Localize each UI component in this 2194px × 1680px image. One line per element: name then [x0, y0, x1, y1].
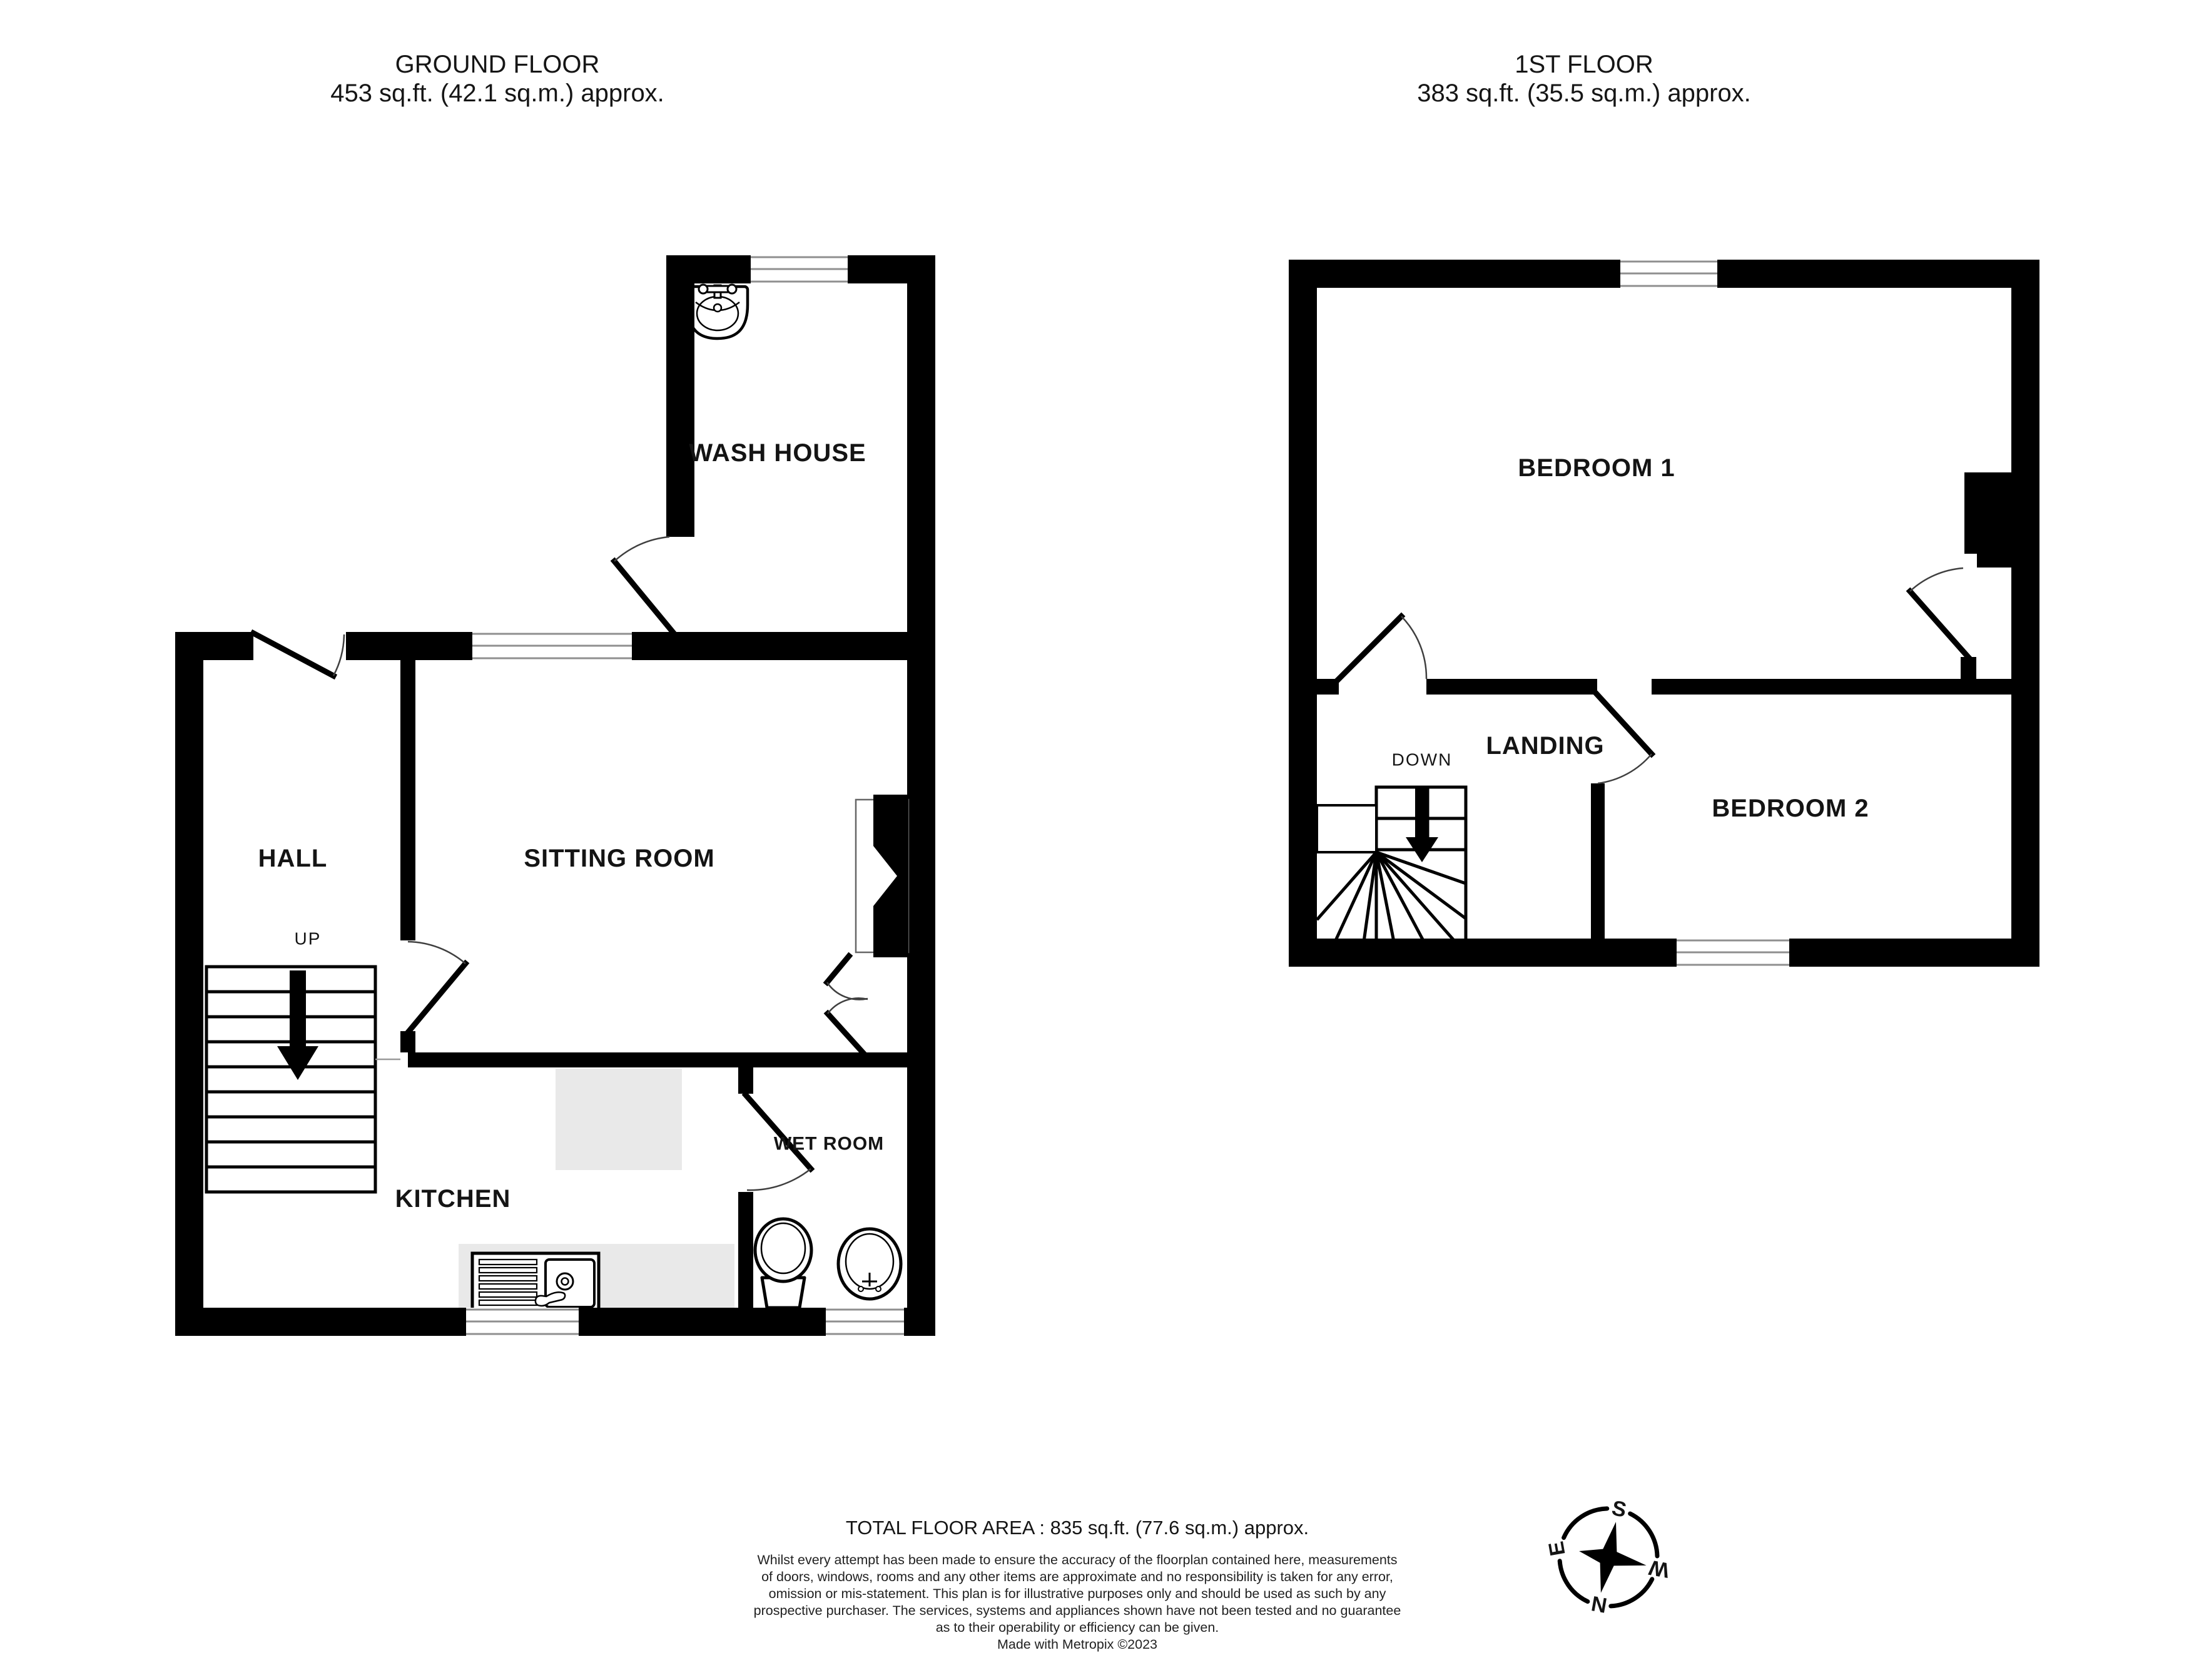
- disclaimer-line: of doors, windows, rooms and any other i…: [754, 1569, 1401, 1586]
- compass-north-label: N: [1590, 1592, 1609, 1618]
- first-floor-plan: BEDROOM 1 DOWN LANDING BEDROOM 2: [1282, 250, 2046, 976]
- kitchen-label: KITCHEN: [395, 1185, 511, 1213]
- disclaimer-line: as to their operability or efficiency ca…: [754, 1619, 1401, 1636]
- compass-south-label: S: [1610, 1496, 1628, 1522]
- stairs-up: [206, 967, 375, 1192]
- wetroom-label: WET ROOM: [774, 1134, 884, 1154]
- sitting-room-window: [472, 632, 632, 660]
- compass-west-label: W: [1647, 1555, 1671, 1582]
- stairs-down-label: DOWN: [1392, 750, 1453, 770]
- ground-floor-title-line: GROUND FLOOR: [330, 50, 664, 79]
- fireplace-icon: [856, 795, 908, 957]
- footer: TOTAL FLOOR AREA : 835 sq.ft. (77.6 sq.m…: [754, 1517, 1401, 1653]
- washhouse-window: [751, 255, 848, 283]
- sitting-room-corner-doors: [827, 956, 868, 1053]
- chimney-breast-icon: [1964, 472, 2011, 568]
- compass-icon: S W N E: [1546, 1495, 1671, 1620]
- disclaimer-line: prospective purchaser. The services, sys…: [754, 1602, 1401, 1619]
- toilet-icon: [755, 1219, 811, 1308]
- sitting-room-door: [408, 942, 465, 1032]
- total-floor-area: TOTAL FLOOR AREA : 835 sq.ft. (77.6 sq.m…: [754, 1517, 1401, 1539]
- stairs-up-label: UP: [295, 929, 322, 949]
- stairs-down: [1317, 787, 1466, 942]
- bedroom2-label: BEDROOM 2: [1712, 795, 1869, 822]
- first-floor-area: 383 sq.ft. (35.5 sq.m.) approx.: [1417, 79, 1751, 108]
- first-floor-title-line: 1ST FLOOR: [1417, 50, 1751, 79]
- wetroom-window: [826, 1308, 904, 1336]
- washhouse-label: WASH HOUSE: [689, 439, 866, 467]
- disclaimer-line: Whilst every attempt has been made to en…: [754, 1552, 1401, 1569]
- ground-floor-area: 453 sq.ft. (42.1 sq.m.) approx.: [330, 79, 664, 108]
- windows-first: [1620, 260, 1789, 967]
- ground-floor-plan: WASH HOUSE HALL SITTING ROOM UP KITCHEN …: [175, 250, 938, 1339]
- sitting-room-label: SITTING ROOM: [524, 845, 714, 872]
- first-floor-title: 1ST FLOOR 383 sq.ft. (35.5 sq.m.) approx…: [1417, 50, 1751, 108]
- compass-east-label: E: [1546, 1540, 1570, 1558]
- metropix-credit: Made with Metropix ©2023: [754, 1636, 1401, 1653]
- kitchen-sink-icon: [472, 1253, 599, 1313]
- wetroom-basin-icon: [838, 1229, 901, 1299]
- floorplan-page: GROUND FLOOR 453 sq.ft. (42.1 sq.m.) app…: [0, 0, 2194, 1680]
- compass-star-icon: [1579, 1522, 1647, 1592]
- landing-label: LANDING: [1486, 732, 1604, 760]
- entrance-door: [253, 633, 344, 676]
- disclaimer-line: omission or mis-statement. This plan is …: [754, 1586, 1401, 1602]
- bedroom1-window: [1620, 260, 1717, 288]
- bedroom1-label: BEDROOM 1: [1518, 454, 1675, 482]
- wash-basin-icon: [688, 285, 748, 339]
- bedroom1-door: [1339, 616, 1426, 679]
- hall-label: HALL: [258, 845, 328, 872]
- bedroom2-door: [1597, 695, 1652, 783]
- bedroom2-window: [1677, 939, 1789, 967]
- kitchen-window: [466, 1308, 579, 1336]
- washhouse-door: [614, 537, 674, 633]
- ground-floor-title: GROUND FLOOR 453 sq.ft. (42.1 sq.m.) app…: [330, 50, 664, 108]
- bedroom1-alcove-door: [1910, 568, 1968, 657]
